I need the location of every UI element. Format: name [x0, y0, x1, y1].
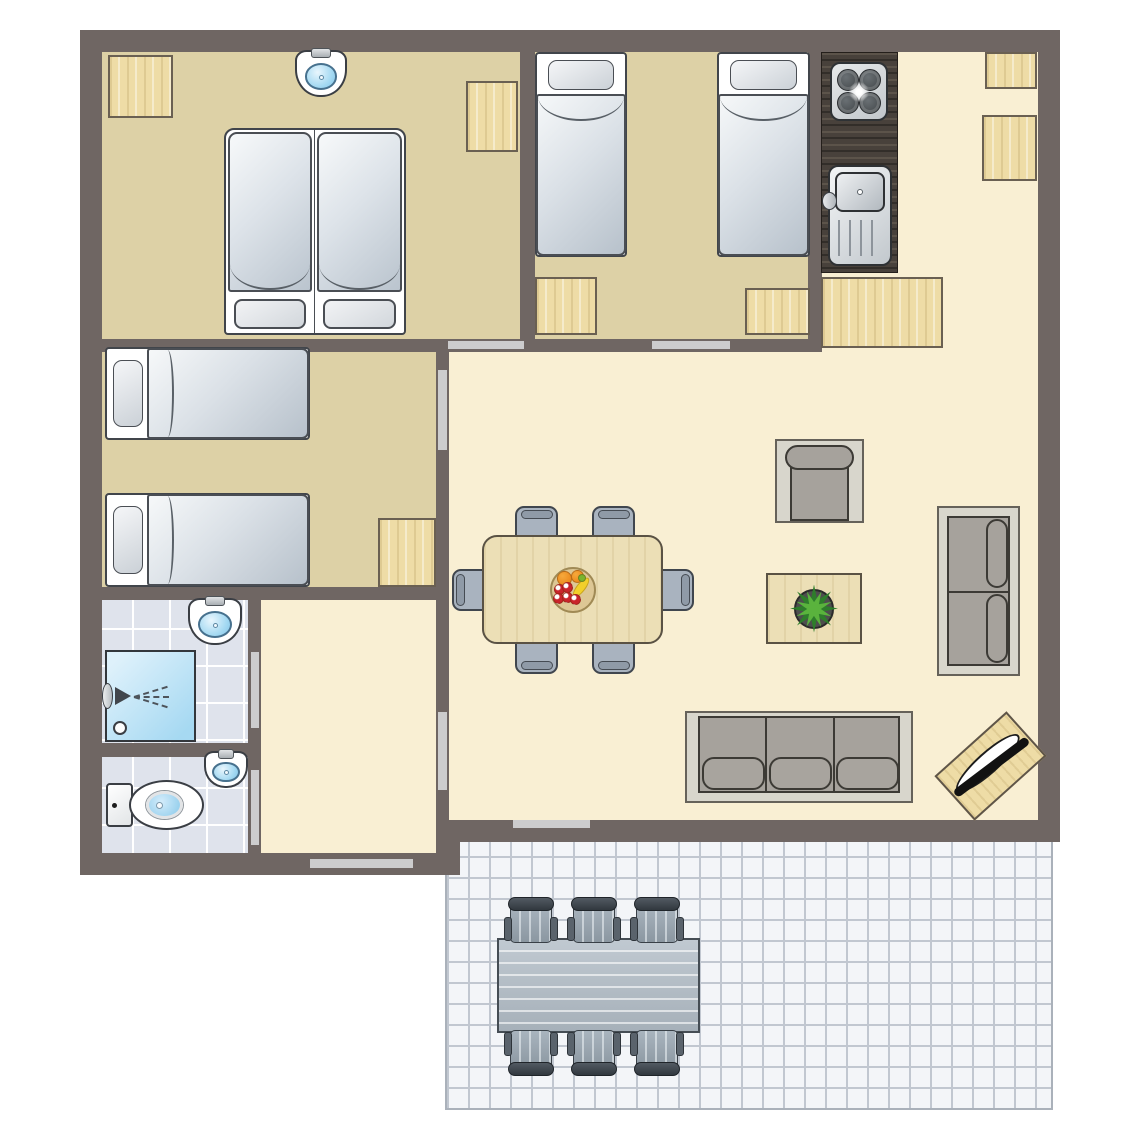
- seat-cushion: [702, 757, 765, 790]
- wall: [436, 820, 460, 875]
- mattress: [536, 94, 626, 256]
- armrest: [567, 917, 575, 941]
- cabinet: [378, 518, 436, 587]
- floor-hallway: [261, 598, 436, 853]
- coffee-table: [766, 573, 862, 644]
- toilet-bowl: [129, 780, 204, 830]
- terrace-chair: [568, 1030, 620, 1076]
- apartment-floor-plan: [0, 0, 1145, 1145]
- armrest: [550, 1032, 558, 1056]
- terrace-chair: [505, 1030, 557, 1076]
- faucet-icon: [205, 596, 225, 606]
- duvet-fold: [720, 96, 807, 121]
- toilet: [106, 780, 204, 830]
- mattress: [228, 132, 313, 292]
- bed-half: [315, 130, 404, 333]
- wall: [102, 587, 448, 600]
- drain-icon: [319, 75, 324, 80]
- backrest-cushion: [986, 594, 1008, 663]
- apple-icon: [562, 582, 573, 593]
- pillow: [113, 506, 143, 574]
- terrace-table: [497, 938, 700, 1033]
- shower-head-icon: [102, 683, 113, 709]
- mattress: [718, 94, 809, 256]
- shower: [105, 650, 196, 742]
- faucet-icon: [311, 48, 330, 58]
- spray-cone: [115, 687, 131, 705]
- drainboard: [838, 220, 881, 256]
- chair-back: [634, 1062, 680, 1076]
- chair-back: [521, 661, 553, 669]
- single-bed: [105, 347, 310, 440]
- highlight: [849, 82, 869, 102]
- fruit-bowl-icon: [550, 567, 596, 613]
- armrest: [567, 1032, 575, 1056]
- cabinet: [535, 277, 597, 335]
- stove: [830, 62, 888, 121]
- chair-back: [598, 510, 630, 518]
- sink-basin: [835, 172, 885, 212]
- armrest: [630, 1032, 638, 1056]
- seat-cushion: [836, 757, 899, 790]
- armrest: [630, 917, 638, 941]
- bed-half: [226, 130, 315, 333]
- chair-back: [508, 897, 554, 911]
- cabinet: [745, 288, 810, 335]
- faucet-icon: [822, 192, 837, 210]
- hallway-living-door: [438, 712, 447, 790]
- second-twin-bedroom-door: [438, 370, 447, 450]
- bathroom-door: [251, 652, 259, 728]
- duvet-fold: [538, 96, 624, 121]
- wall: [520, 52, 535, 352]
- chair-back: [634, 897, 680, 911]
- armchair: [775, 439, 864, 523]
- backrest: [785, 445, 855, 470]
- seat-cushion: [769, 757, 832, 790]
- mattress: [317, 132, 402, 292]
- pillow: [234, 299, 306, 329]
- armrest: [676, 1032, 684, 1056]
- kitchen-cabinet: [985, 52, 1037, 89]
- twin-bedroom-door: [652, 341, 730, 349]
- single-bed: [535, 52, 627, 257]
- armrest: [613, 917, 621, 941]
- terrace-chair: [568, 897, 620, 943]
- wall: [1038, 30, 1060, 842]
- chair-back: [456, 574, 464, 605]
- duvet-fold: [319, 264, 400, 291]
- kitchen-cabinet: [982, 115, 1037, 181]
- faucet-icon: [218, 749, 234, 759]
- duvet-fold: [149, 350, 174, 437]
- armrest: [504, 1032, 512, 1056]
- double-bed: [224, 128, 406, 335]
- mattress: [147, 348, 309, 439]
- wall: [80, 30, 102, 875]
- chair-back: [521, 510, 553, 518]
- wardrobe: [466, 81, 518, 152]
- drain-icon: [113, 721, 127, 735]
- dining-table: [482, 535, 663, 644]
- terrace-chair: [505, 897, 557, 943]
- terrace-chair: [631, 1030, 683, 1076]
- chair-back: [508, 1062, 554, 1076]
- seat-divider: [765, 717, 767, 791]
- basin: [198, 611, 232, 638]
- duvet-fold: [149, 496, 174, 584]
- apple-icon: [570, 594, 581, 605]
- kitchen-sink: [828, 165, 892, 266]
- drain-icon: [224, 770, 229, 775]
- backrest-cushion: [986, 519, 1008, 588]
- terrace-door: [513, 820, 590, 828]
- drain-icon: [857, 189, 863, 195]
- wardrobe: [108, 55, 173, 118]
- armrest: [504, 917, 512, 941]
- chair-back: [571, 1062, 617, 1076]
- toilet-door: [251, 770, 259, 845]
- pillow: [548, 60, 615, 90]
- single-bed: [105, 493, 310, 587]
- sofa-3-seat: [685, 711, 913, 803]
- wall: [808, 52, 822, 352]
- armrest: [613, 1032, 621, 1056]
- duvet-fold: [230, 264, 311, 291]
- terrace-chair: [631, 897, 683, 943]
- chair-back: [598, 661, 630, 669]
- pillow: [113, 360, 143, 428]
- pillow: [323, 299, 396, 329]
- pillow: [730, 60, 798, 90]
- drain-icon: [156, 802, 163, 809]
- armrest: [676, 917, 684, 941]
- master-bedroom-door: [448, 341, 524, 349]
- chair-back: [681, 574, 689, 605]
- basin: [212, 762, 239, 782]
- drain-icon: [213, 623, 218, 628]
- flush-button-icon: [112, 803, 117, 808]
- basin: [305, 63, 338, 90]
- sofa-2-seat: [937, 506, 1020, 676]
- mattress: [147, 494, 309, 586]
- armrest: [550, 917, 558, 941]
- single-bed: [717, 52, 810, 257]
- chair-back: [571, 897, 617, 911]
- kitchen-cabinet: [821, 277, 943, 348]
- wall: [80, 30, 1060, 52]
- water: [146, 791, 183, 820]
- entrance-door: [310, 859, 413, 868]
- seat-divider: [833, 717, 835, 791]
